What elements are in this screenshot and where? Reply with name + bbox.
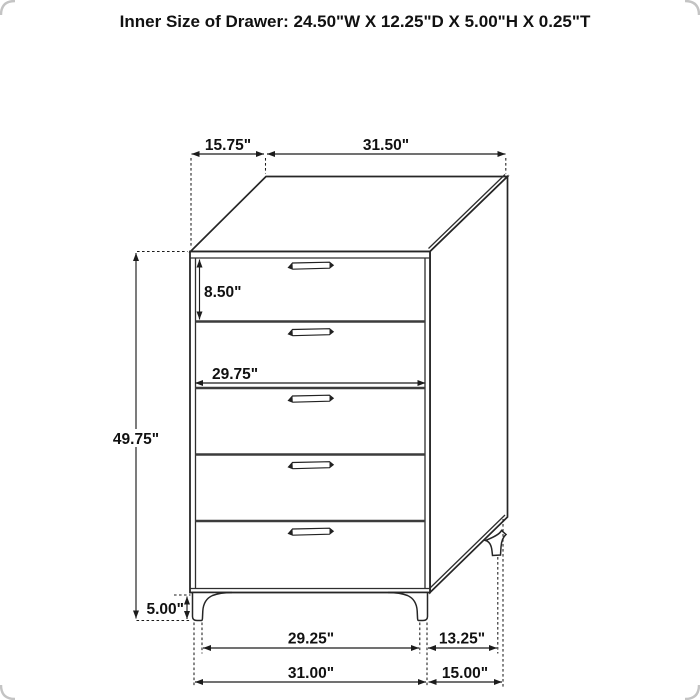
dim-drawer-front-width-label: 29.75": [212, 366, 258, 383]
chest-dimension-diagram: Inner Size of Drawer: 24.50"W X 12.25"D …: [0, 0, 700, 700]
dim-overall-depth-label: 15.00": [442, 665, 488, 682]
dim-overall-width-label: 31.00": [288, 665, 334, 682]
dim-top-drawer-height-label: 8.50": [204, 284, 242, 301]
dim-overall-depth: 15.00": [429, 665, 503, 682]
drawer-4-handle-icon: [289, 462, 334, 469]
dim-side-leg-span-label: 13.25": [439, 631, 485, 648]
leg-front-right: [388, 593, 428, 621]
drawer-1-handle-icon: [289, 262, 334, 269]
leg-front-left: [193, 593, 233, 621]
drawer-3-handle-icon: [289, 395, 334, 402]
dimension-diagram-page: Inner Size of Drawer: 24.50"W X 12.25"D …: [0, 0, 700, 700]
drawer-4: [196, 456, 424, 519]
drawer-5-handle-icon: [289, 528, 334, 535]
dim-leg-height-label: 5.00": [146, 601, 184, 618]
dim-top-width: 31.50": [267, 137, 506, 154]
drawer-3: [196, 390, 424, 453]
drawer-5: [196, 523, 424, 587]
dim-side-leg-span: 13.25": [428, 631, 497, 649]
dim-leg-height: 5.00": [146, 597, 187, 620]
dim-top-width-label: 31.50": [363, 137, 409, 154]
dim-case-height: 49.75": [111, 253, 161, 619]
dim-front-leg-span-label: 29.25": [288, 631, 334, 648]
drawer-2-handle-icon: [289, 329, 334, 336]
dim-front-leg-span: 29.25": [203, 631, 419, 649]
dim-case-height-label: 49.75": [113, 431, 159, 448]
dim-overall-width: 31.00": [195, 665, 426, 682]
dim-top-depth: 15.75": [192, 137, 265, 154]
page-title: Inner Size of Drawer: 24.50"W X 12.25"D …: [120, 12, 591, 31]
dim-top-depth-label: 15.75": [205, 137, 251, 154]
chest-drawing: [190, 175, 508, 621]
